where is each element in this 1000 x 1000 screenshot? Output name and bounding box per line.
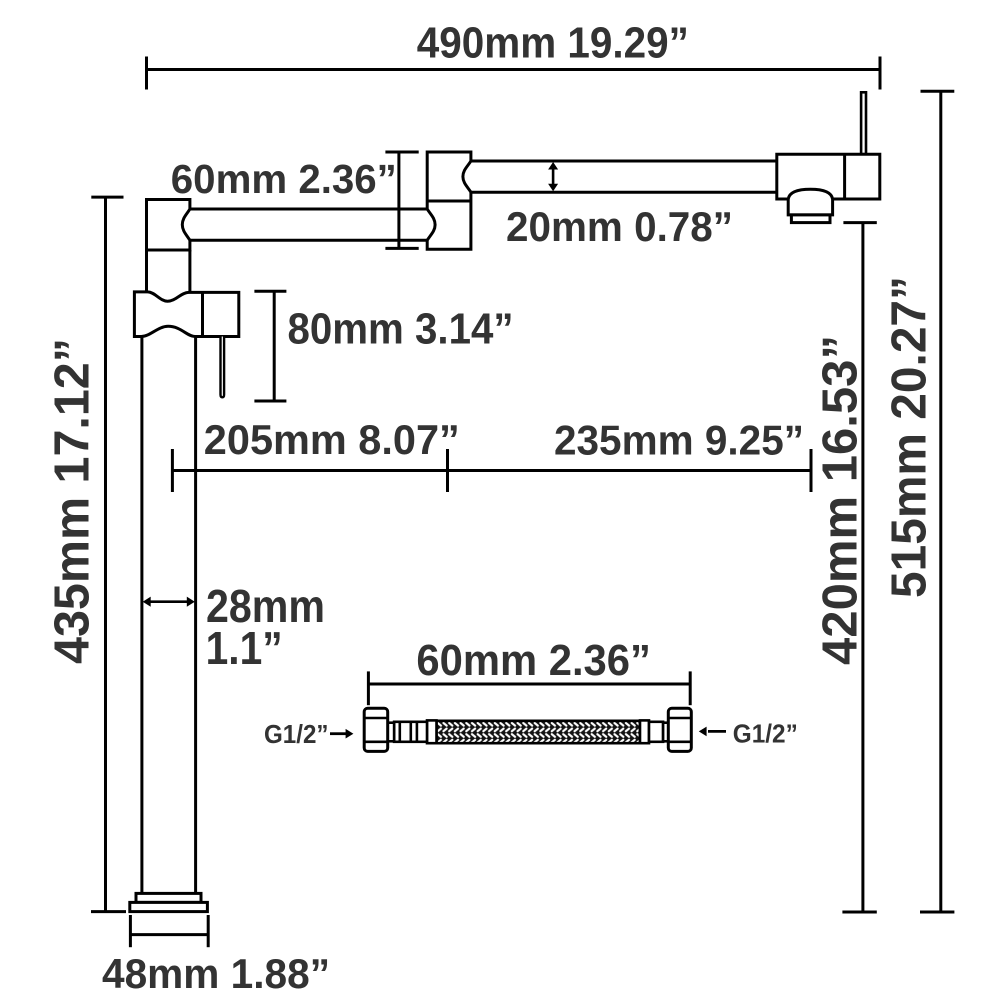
svg-text:515mm 20.27”: 515mm 20.27” <box>882 276 937 598</box>
svg-text:235mm 9.25”: 235mm 9.25” <box>554 417 804 464</box>
svg-text:1.1”: 1.1” <box>206 622 283 674</box>
svg-text:G1/2”: G1/2” <box>733 719 798 749</box>
svg-text:G1/2”: G1/2” <box>264 719 329 749</box>
svg-text:490mm 19.29”: 490mm 19.29” <box>417 20 689 68</box>
svg-text:80mm 3.14”: 80mm 3.14” <box>288 304 514 353</box>
svg-text:60mm 2.36”: 60mm 2.36” <box>416 636 651 685</box>
svg-text:20mm 0.78”: 20mm 0.78” <box>506 203 733 250</box>
svg-text:48mm 1.88”: 48mm 1.88” <box>102 950 330 997</box>
svg-text:205mm 8.07”: 205mm 8.07” <box>204 416 460 463</box>
svg-text:435mm 17.12”: 435mm 17.12” <box>45 338 100 664</box>
svg-text:60mm 2.36”: 60mm 2.36” <box>171 156 397 202</box>
svg-text:420mm 16.53”: 420mm 16.53” <box>813 335 868 665</box>
